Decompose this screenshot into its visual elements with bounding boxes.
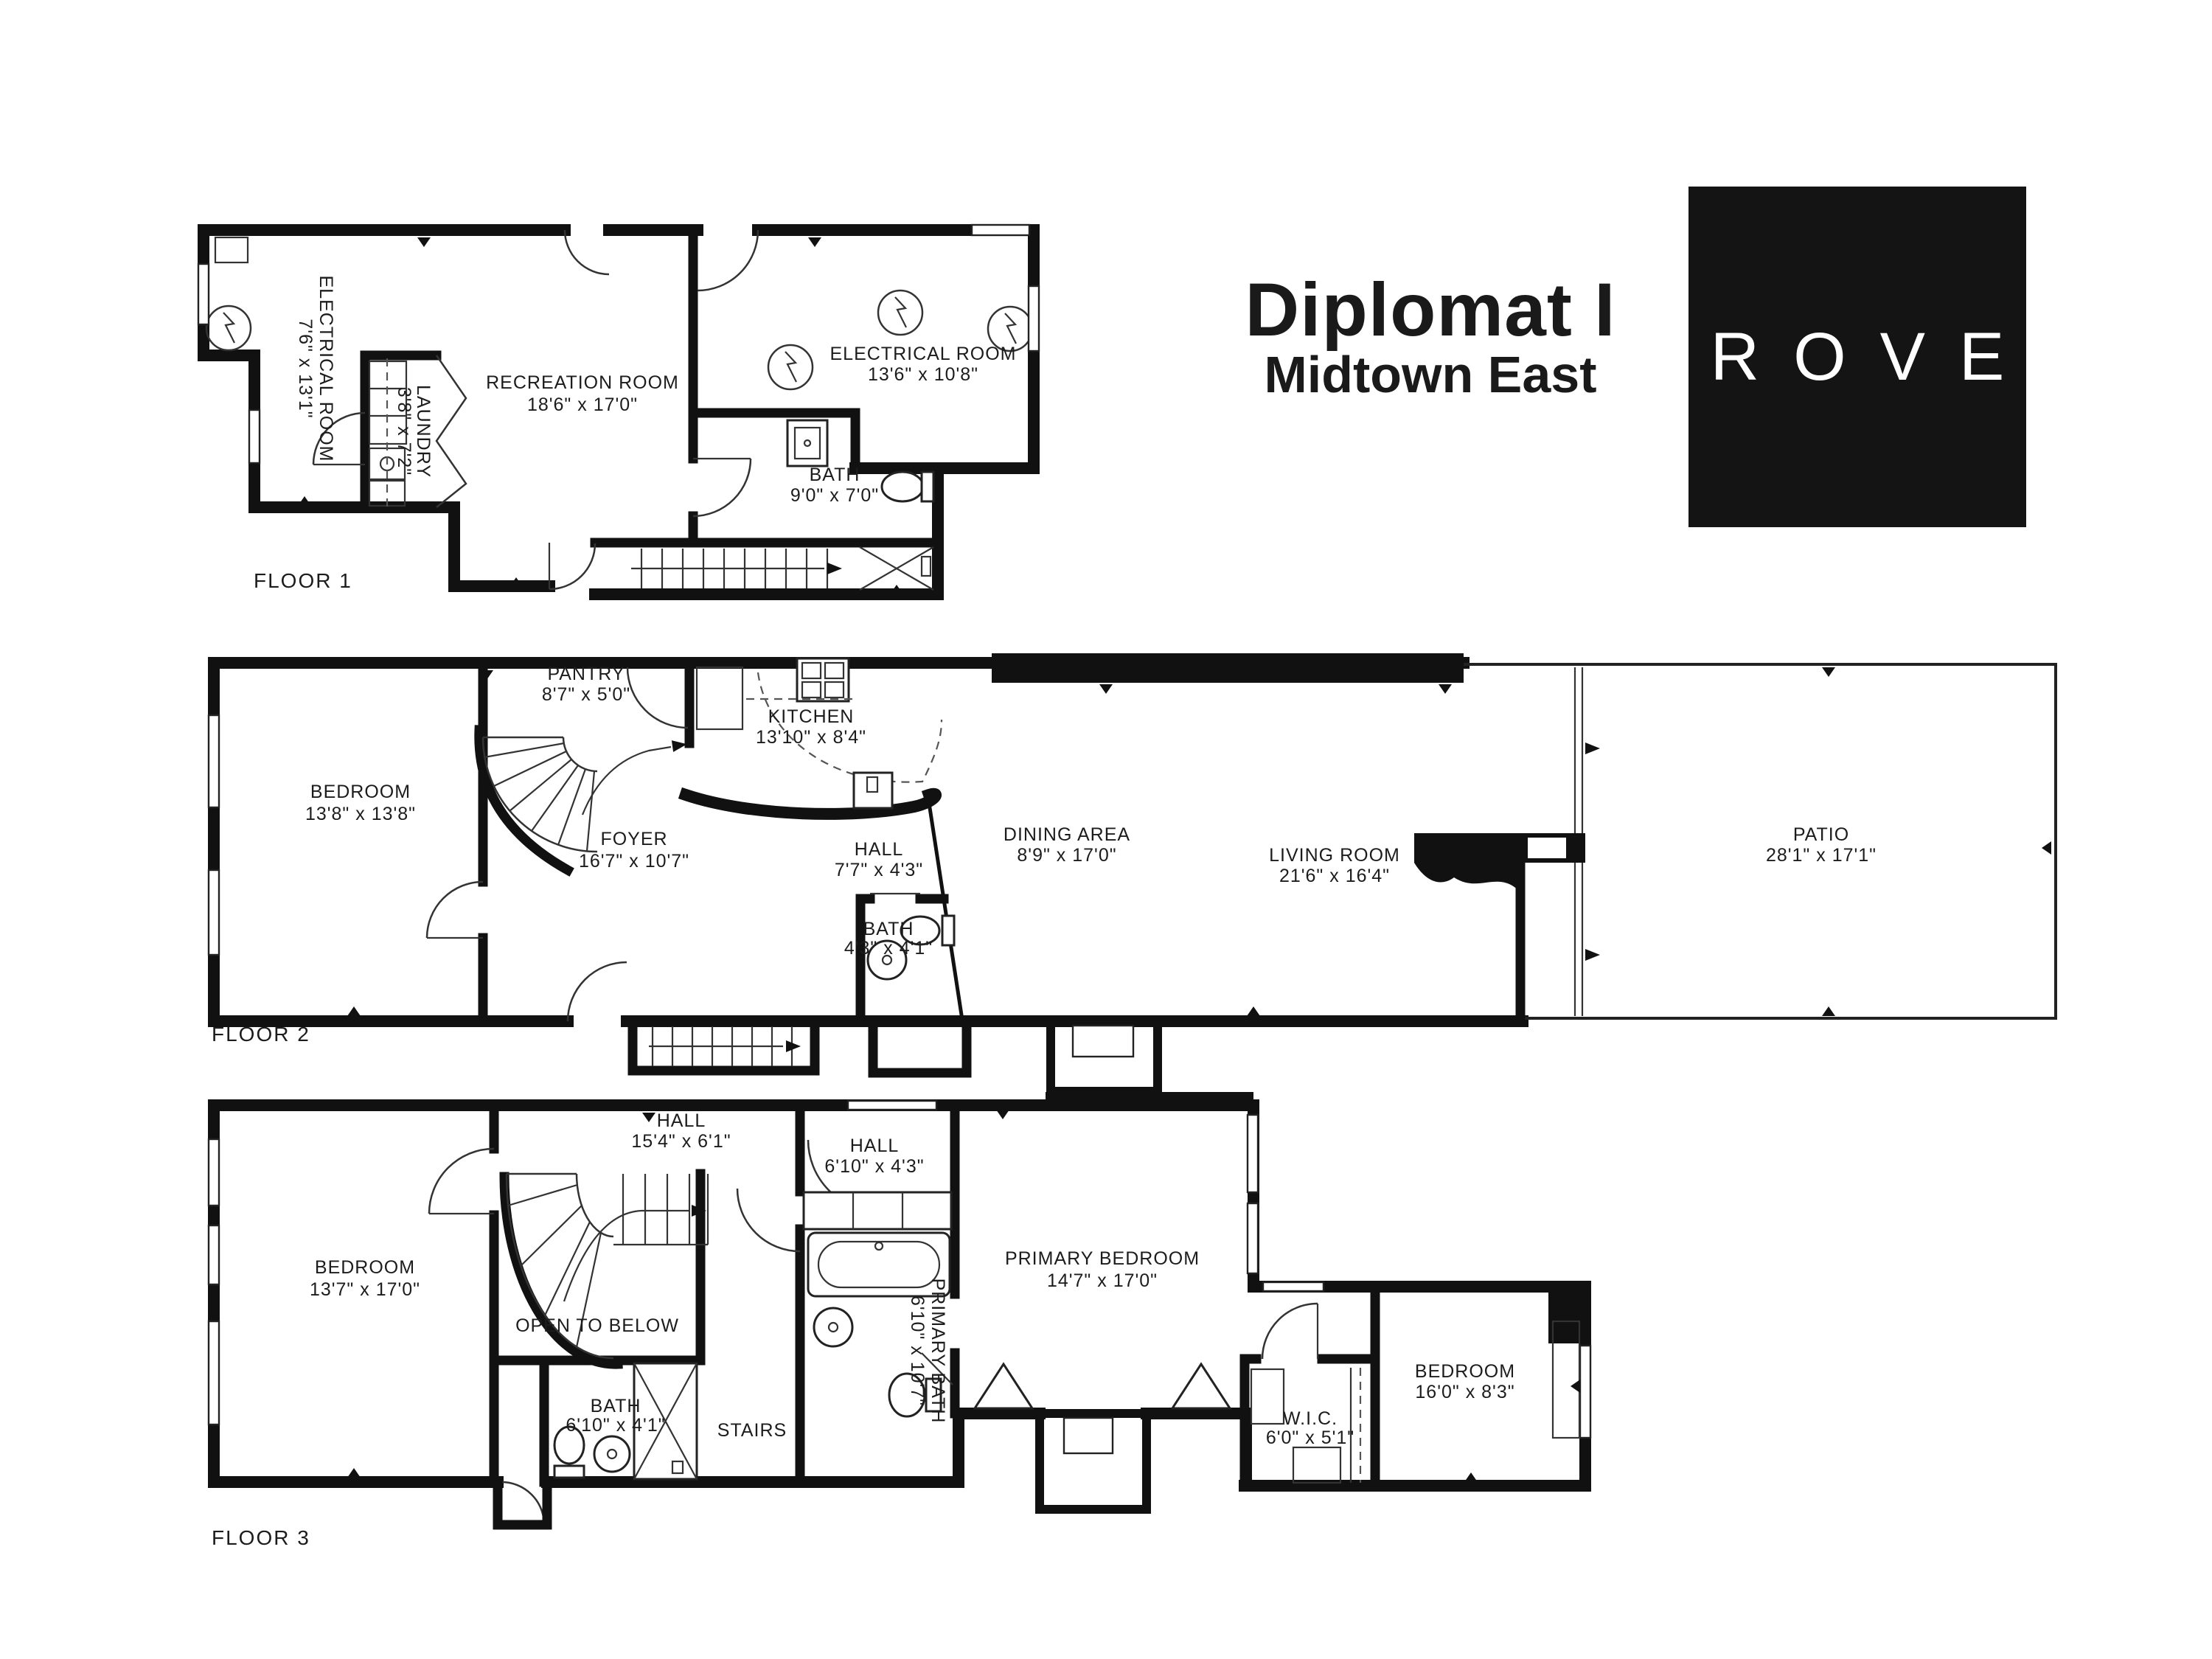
room-label-hall2-f3: HALL [850, 1135, 900, 1156]
room-dims-bedroom-f3-right: 16'0" x 8'3" [1415, 1382, 1514, 1402]
room-label-bedroom-f3-right: BEDROOM [1415, 1361, 1515, 1382]
party-wall [992, 653, 1464, 683]
room-dims-pantry: 8'7" x 5'0" [542, 684, 630, 705]
window [1263, 1282, 1324, 1291]
floor-2-label: FLOOR 2 [212, 1023, 310, 1046]
room-label-kitchen: KITCHEN [768, 706, 855, 727]
party-wall [1046, 1092, 1253, 1108]
cabinet [215, 237, 248, 262]
closet-door [975, 1364, 1032, 1408]
balcony [1051, 1021, 1158, 1091]
floor-1-plan: ELECTRICAL ROOM 7'6" x 13'1" LAUNDRY 3'8… [198, 225, 1039, 594]
window [209, 1225, 219, 1284]
electrical-symbol [768, 345, 813, 389]
room-label-recreation-room: RECREATION ROOM [486, 372, 679, 393]
room-dims-patio: 28'1" x 17'1" [1766, 845, 1877, 866]
room-label-dining-area: DINING AREA [1004, 824, 1130, 845]
window [209, 1139, 219, 1206]
door-leaves [313, 459, 751, 589]
floor-3-label: FLOOR 3 [212, 1526, 310, 1549]
kitchen-curved-wall [686, 794, 936, 814]
room-label-bath-1: BATH [810, 465, 860, 485]
room-dims-bath-f2: 4'3" x 4'1" [844, 938, 933, 959]
window [1248, 1203, 1258, 1273]
electrical-symbol [206, 306, 251, 350]
room-dims-foyer: 16'7" x 10'7" [579, 851, 689, 872]
room-label-foyer: FOYER [600, 829, 667, 849]
floor-2-plan: BEDROOM 13'8" x 13'8" PANTRY 8'7" x 5'0"… [209, 653, 2056, 1091]
window [1029, 286, 1039, 351]
floor-3-plan: BEDROOM 13'7" x 17'0" HALL 15'4" x 6'1" … [209, 1092, 1590, 1549]
window [1580, 1346, 1590, 1438]
room-dims-laundry: 3'8" x 7'2" [394, 387, 414, 476]
room-dims-primary-bath: 6'10" x 10'7" [907, 1295, 928, 1406]
window [209, 715, 219, 807]
room-dims-dining-area: 8'9" x 17'0" [1017, 845, 1116, 866]
room-label-primary-bath: PRIMARY BATH [928, 1279, 948, 1424]
angled-wall [928, 793, 962, 1020]
property-name: Diplomat I [1172, 271, 1688, 348]
room-label-hall-f2: HALL [855, 839, 904, 860]
room-dims-wic: 6'0" x 5'1" [1266, 1427, 1354, 1448]
room-label-pantry: PANTRY [547, 664, 625, 684]
room-dims-bath-1: 9'0" x 7'0" [790, 485, 879, 506]
room-label-wic: W.I.C. [1283, 1408, 1338, 1429]
floorplan-page: ELECTRICAL ROOM 7'6" x 13'1" LAUNDRY 3'8… [0, 0, 2212, 1659]
floor-1-label: FLOOR 1 [254, 569, 352, 592]
entry-stairs [633, 1021, 815, 1071]
electrical-symbol [878, 291, 922, 335]
room-label-open-to-below: OPEN TO BELOW [515, 1315, 679, 1336]
rove-logo: ROVE [1688, 187, 2026, 527]
storage-x-box [860, 547, 933, 590]
room-dims-hall-f2: 7'7" x 4'3" [835, 860, 923, 880]
property-location: Midtown East [1172, 348, 1688, 403]
room-label-laundry: LAUNDRY [413, 385, 434, 478]
room-dims-living-room: 21'6" x 16'4" [1279, 866, 1390, 886]
window [209, 870, 219, 955]
patio-door [1528, 838, 1566, 858]
room-label-primary-bedroom: PRIMARY BEDROOM [1005, 1248, 1200, 1269]
fireplace [1414, 833, 1519, 891]
room-dims-bedroom-f2: 13'8" x 13'8" [305, 804, 416, 824]
window [209, 1321, 219, 1425]
room-label-hall-f3: HALL [657, 1110, 706, 1131]
room-label-bath-f3: BATH [591, 1396, 641, 1416]
stairs-run [631, 549, 842, 588]
room-label-living-room: LIVING ROOM [1269, 845, 1400, 866]
window [249, 410, 260, 463]
room-dims-recreation-room: 18'6" x 17'0" [527, 394, 638, 415]
closet-door [1172, 1364, 1230, 1408]
room-dims-electrical-room-2: 13'6" x 10'8" [868, 364, 978, 385]
window [848, 1101, 936, 1110]
rove-logo-text: ROVE [1711, 319, 2039, 396]
balcony-f3 [1040, 1413, 1147, 1509]
room-dims-primary-bedroom: 14'7" x 17'0" [1047, 1270, 1158, 1291]
room-dims-bath-f3: 6'10" x 4'1" [566, 1415, 665, 1436]
room-dims-electrical-room-1: 7'6" x 13'1" [295, 319, 316, 418]
room-dims-bedroom-f3-left: 13'7" x 17'0" [310, 1279, 420, 1300]
room-label-electrical-room-1: ELECTRICAL ROOM [316, 275, 336, 462]
bath-bump [873, 1021, 967, 1073]
room-label-bath-f2: BATH [863, 919, 914, 939]
room-dims-hall2-f3: 6'10" x 4'3" [824, 1156, 924, 1177]
window [198, 264, 209, 324]
window [972, 225, 1029, 235]
door-leaves [427, 894, 920, 938]
room-dims-hall-f3: 15'4" x 6'1" [631, 1131, 731, 1152]
room-label-patio: PATIO [1793, 824, 1849, 845]
window [1248, 1115, 1258, 1192]
room-label-bedroom-f3-left: BEDROOM [315, 1257, 415, 1278]
room-label-electrical-room-2: ELECTRICAL ROOM [829, 344, 1016, 364]
room-label-bedroom-f2: BEDROOM [310, 782, 411, 802]
room-label-stairs: STAIRS [717, 1420, 787, 1441]
title-block: Diplomat I Midtown East [1172, 271, 1688, 403]
room-dims-kitchen: 13'10" x 8'4" [756, 727, 866, 748]
